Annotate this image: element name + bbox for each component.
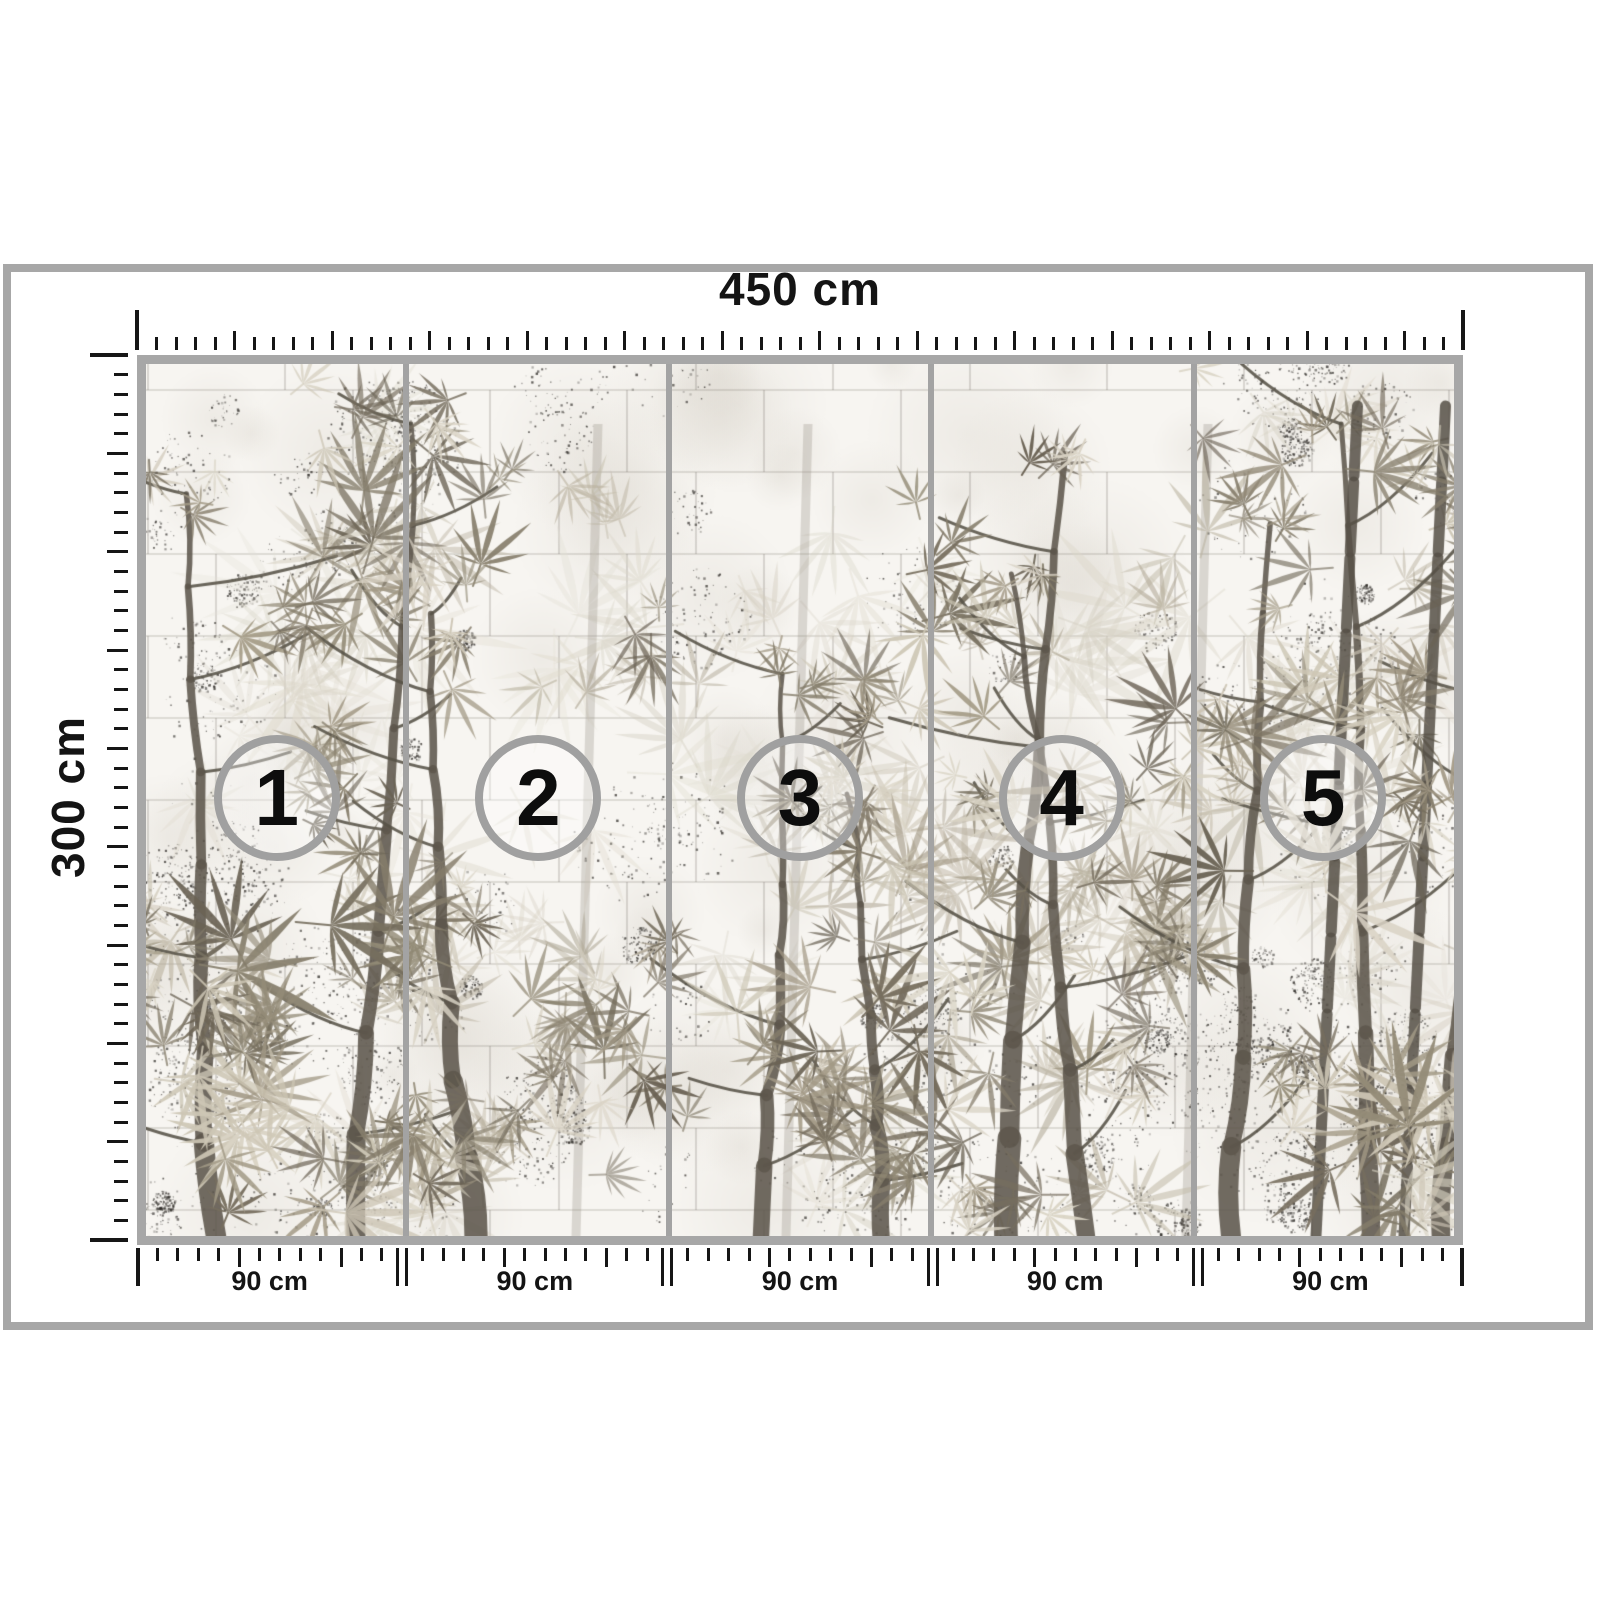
ruler-tick (1298, 1248, 1301, 1267)
ruler-tick (114, 609, 128, 612)
ruler-tick (1423, 337, 1426, 350)
ruler-tick (1150, 337, 1153, 350)
panel-width-label: 90 cm (667, 1266, 932, 1297)
ruler-tick (114, 963, 128, 966)
ruler-tick (114, 590, 128, 593)
ruler-tick (935, 337, 938, 350)
panel-width-label: 90 cm (402, 1266, 667, 1297)
ruler-tick (740, 337, 743, 350)
ruler-tick (1033, 337, 1036, 350)
ruler-tick (646, 1248, 649, 1261)
ruler-tick (809, 1248, 812, 1261)
panel-width-label: 90 cm (137, 1266, 402, 1297)
ruler-tick (1306, 331, 1309, 350)
ruler-tick (1258, 1248, 1261, 1261)
ruler-tick (1325, 337, 1328, 350)
ruler-tick (360, 1248, 363, 1261)
ruler-tick (114, 767, 128, 770)
panel-number-badge: 2 (475, 735, 601, 861)
ruler-tick (197, 1248, 200, 1261)
ruler-tick (503, 1248, 506, 1267)
ruler-tick (90, 353, 128, 357)
ruler-tick (114, 472, 128, 475)
panel-number-badge: 3 (737, 735, 863, 861)
ruler-tick (721, 331, 724, 350)
ruler-tick (838, 337, 841, 350)
ruler-tick (90, 1238, 128, 1242)
ruler-tick (992, 1248, 995, 1261)
ruler-tick (850, 1248, 853, 1261)
ruler-tick (114, 727, 128, 730)
ruler-tick (1403, 331, 1406, 350)
ruler-tick (1074, 1248, 1077, 1261)
ruler-tick (114, 432, 128, 435)
ruler-tick (1111, 331, 1114, 350)
ruler-tick (114, 1219, 128, 1222)
ruler-tick (217, 1248, 220, 1261)
ruler-tick (467, 337, 470, 350)
ruler-tick (114, 1022, 128, 1025)
ruler-tick (625, 1248, 628, 1261)
ruler-tick (565, 337, 568, 350)
ruler-tick (114, 1081, 128, 1084)
ruler-tick (1176, 1248, 1179, 1261)
ruler-tick (707, 1248, 710, 1261)
ruler-tick (175, 337, 178, 350)
ruler-tick (877, 337, 880, 350)
ruler-tick (1115, 1248, 1118, 1261)
panel-number: 2 (516, 758, 561, 838)
panel-number: 4 (1039, 758, 1084, 838)
ruler-tick (1319, 1248, 1322, 1261)
ruler-tick (389, 337, 392, 350)
panel-number-badge: 4 (999, 735, 1125, 861)
ruler-tick (114, 393, 128, 396)
panel-width-label: 90 cm (1198, 1266, 1463, 1297)
ruler-tick (972, 1248, 975, 1261)
ruler-tick (727, 1248, 730, 1261)
ruler-tick (194, 337, 197, 350)
ruler-tick (107, 944, 128, 947)
ruler-tick (258, 1248, 261, 1261)
ruler-tick (768, 1248, 771, 1267)
ruler-tick (107, 1140, 128, 1143)
ruler-tick (896, 337, 899, 350)
ruler-tick (1072, 337, 1075, 350)
ruler-tick (421, 1248, 424, 1261)
ruler-tick (331, 331, 334, 350)
ruler-tick (114, 1160, 128, 1163)
ruler-tick (1052, 337, 1055, 350)
ruler-tick (114, 1121, 128, 1124)
ruler-tick (1247, 337, 1250, 350)
total-width-label: 450 cm (137, 262, 1463, 316)
ruler-tick (114, 511, 128, 514)
ruler-tick (916, 331, 919, 350)
ruler-tick (911, 1248, 914, 1261)
ruler-tick (340, 1248, 343, 1267)
ruler-tick (114, 885, 128, 888)
ruler-tick (311, 337, 314, 350)
panel-number: 3 (778, 758, 823, 838)
ruler-tick (292, 337, 295, 350)
panel-number: 1 (255, 758, 300, 838)
ruler-tick (1156, 1248, 1159, 1261)
ruler-tick (107, 1042, 128, 1045)
panel-number-row: 1 2 3 4 5 (146, 734, 1454, 862)
ruler-tick (114, 570, 128, 573)
ruler-tick (114, 983, 128, 986)
ruler-tick (409, 337, 412, 350)
ruler-tick (1267, 337, 1270, 350)
ruler-tick (1169, 337, 1172, 350)
ruler-tick (1237, 1248, 1240, 1261)
ruler-tick (1360, 1248, 1363, 1261)
ruler-tick (1364, 337, 1367, 350)
left-ruler (88, 355, 128, 1240)
ruler-tick (155, 337, 158, 350)
ruler-tick (114, 688, 128, 691)
ruler-tick (544, 1248, 547, 1261)
ruler-tick (686, 1248, 689, 1261)
ruler-tick (114, 491, 128, 494)
ruler-tick (857, 337, 860, 350)
ruler-tick (1091, 337, 1094, 350)
ruler-tick (1135, 1248, 1138, 1267)
panel-width-labels: 90 cm 90 cm 90 cm 90 cm 90 cm (137, 1266, 1463, 1297)
ruler-tick (1208, 331, 1211, 350)
ruler-tick (114, 413, 128, 416)
ruler-tick (1380, 1248, 1383, 1261)
ruler-tick (1013, 331, 1016, 350)
ruler-tick (299, 1248, 302, 1261)
wallpaper-panel-size-diagram: 450 cm 300 cm 1 2 3 (0, 0, 1600, 1600)
ruler-tick (890, 1248, 893, 1261)
ruler-tick (779, 337, 782, 350)
ruler-tick (114, 668, 128, 671)
ruler-tick (233, 331, 236, 350)
ruler-tick (107, 845, 128, 848)
ruler-tick (1217, 1248, 1220, 1261)
ruler-tick (114, 806, 128, 809)
ruler-tick (1228, 337, 1231, 350)
panel-4-cell: 4 (931, 734, 1193, 862)
ruler-tick (788, 1248, 791, 1261)
ruler-tick (1286, 337, 1289, 350)
ruler-tick (114, 904, 128, 907)
ruler-tick (114, 708, 128, 711)
ruler-tick (701, 337, 704, 350)
ruler-tick (1442, 337, 1445, 350)
ruler-tick (623, 331, 626, 350)
ruler-tick (350, 337, 353, 350)
ruler-tick (1461, 310, 1465, 350)
ruler-tick (370, 337, 373, 350)
ruler-tick (1033, 1248, 1036, 1267)
ruler-tick (238, 1248, 241, 1267)
ruler-tick (1441, 1248, 1444, 1261)
ruler-tick (955, 337, 958, 350)
ruler-tick (545, 337, 548, 350)
ruler-tick (682, 337, 685, 350)
ruler-tick (114, 1003, 128, 1006)
ruler-tick (1400, 1248, 1403, 1267)
ruler-tick (584, 337, 587, 350)
ruler-tick (748, 1248, 751, 1261)
panel-number-badge: 5 (1260, 735, 1386, 861)
ruler-tick (605, 1248, 608, 1267)
ruler-tick (994, 337, 997, 350)
ruler-tick (107, 452, 128, 455)
panel-2-cell: 2 (408, 734, 670, 862)
ruler-tick (487, 337, 490, 350)
ruler-tick (1339, 1248, 1342, 1261)
ruler-tick (448, 337, 451, 350)
ruler-tick (1130, 337, 1133, 350)
ruler-tick (1054, 1248, 1057, 1261)
ruler-tick (442, 1248, 445, 1261)
ruler-tick (380, 1248, 383, 1261)
ruler-tick (114, 1062, 128, 1065)
ruler-tick (604, 337, 607, 350)
ruler-tick (482, 1248, 485, 1261)
ruler-tick (1345, 337, 1348, 350)
ruler-tick (584, 1248, 587, 1261)
ruler-tick (135, 310, 139, 350)
ruler-tick (114, 826, 128, 829)
total-height-label: 300 cm (41, 716, 95, 878)
ruler-tick (272, 337, 275, 350)
top-ruler (137, 310, 1463, 350)
ruler-tick (818, 331, 821, 350)
ruler-tick (829, 1248, 832, 1261)
ruler-tick (523, 1248, 526, 1261)
ruler-tick (799, 337, 802, 350)
ruler-tick (114, 373, 128, 376)
ruler-tick (564, 1248, 567, 1261)
ruler-tick (1013, 1248, 1016, 1261)
panel-5-cell: 5 (1192, 734, 1454, 862)
ruler-tick (760, 337, 763, 350)
ruler-tick (156, 1248, 159, 1261)
ruler-tick (107, 649, 128, 652)
ruler-tick (974, 337, 977, 350)
ruler-tick (278, 1248, 281, 1261)
panel-width-label: 90 cm (933, 1266, 1198, 1297)
ruler-tick (114, 629, 128, 632)
ruler-tick (526, 331, 529, 350)
ruler-tick (114, 1180, 128, 1183)
panel-1-cell: 1 (146, 734, 408, 862)
ruler-tick (1421, 1248, 1424, 1261)
ruler-tick (114, 924, 128, 927)
panel-number: 5 (1301, 758, 1346, 838)
ruler-tick (214, 337, 217, 350)
ruler-tick (1189, 337, 1192, 350)
ruler-tick (107, 747, 128, 750)
ruler-tick (506, 337, 509, 350)
ruler-tick (253, 337, 256, 350)
ruler-tick (114, 865, 128, 868)
ruler-tick (114, 1199, 128, 1202)
ruler-tick (662, 337, 665, 350)
ruler-tick (643, 337, 646, 350)
ruler-tick (870, 1248, 873, 1267)
ruler-tick (428, 331, 431, 350)
ruler-tick (114, 531, 128, 534)
ruler-tick (114, 1101, 128, 1104)
ruler-tick (176, 1248, 179, 1261)
ruler-tick (1278, 1248, 1281, 1261)
ruler-tick (462, 1248, 465, 1261)
ruler-tick (952, 1248, 955, 1261)
panel-number-badge: 1 (214, 735, 340, 861)
panel-3-cell: 3 (669, 734, 931, 862)
ruler-tick (107, 550, 128, 553)
ruler-tick (114, 786, 128, 789)
ruler-tick (319, 1248, 322, 1261)
ruler-tick (1094, 1248, 1097, 1261)
ruler-tick (1384, 337, 1387, 350)
